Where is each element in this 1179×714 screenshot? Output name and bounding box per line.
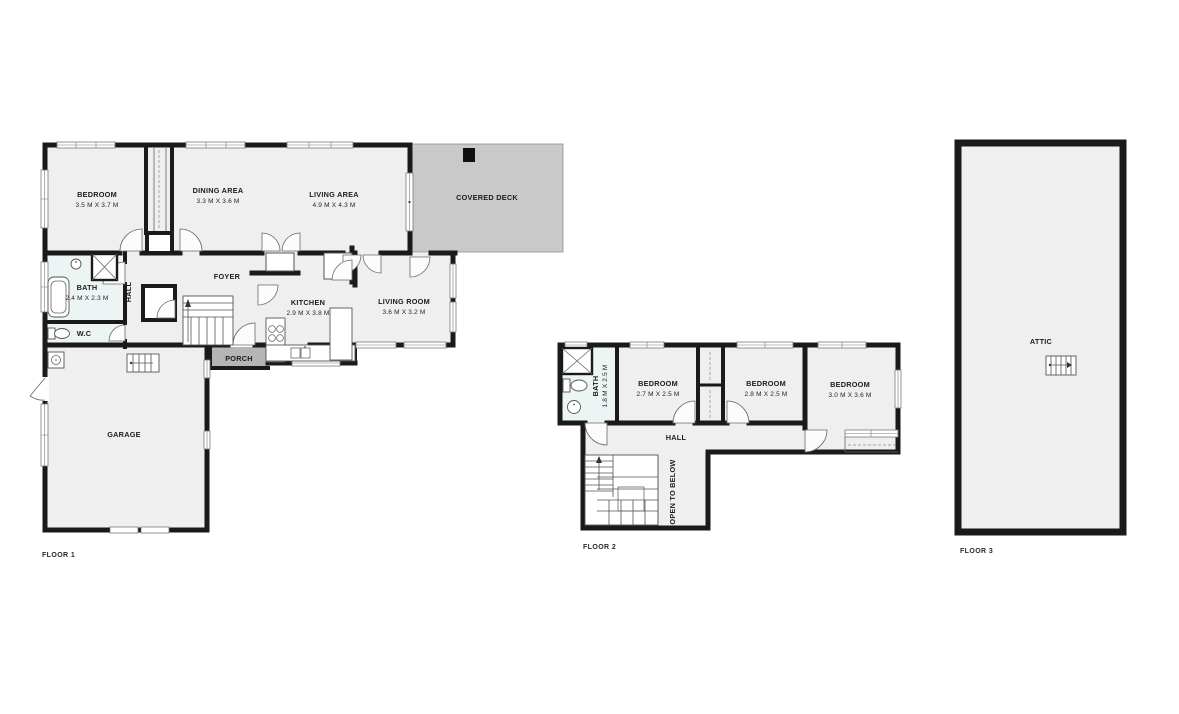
shower-icon [92, 254, 117, 280]
side-door-gap [41, 377, 49, 401]
svg-text:BATH: BATH [591, 376, 600, 397]
room-label-open-to-below: OPEN TO BELOW [668, 459, 677, 524]
room-label-covered-deck: COVERED DECK [456, 193, 518, 202]
svg-text:BEDROOM: BEDROOM [77, 190, 117, 199]
floor2-toilet-icon [563, 379, 587, 392]
window [41, 404, 48, 466]
svg-text:1.8 M X 2.5 M: 1.8 M X 2.5 M [602, 364, 609, 407]
window [287, 142, 353, 148]
room-label-porch: PORCH [225, 354, 253, 363]
svg-text:2.9 M X 3.8 M: 2.9 M X 3.8 M [286, 310, 329, 317]
svg-text:3.6 M X 3.2 M: 3.6 M X 3.2 M [382, 309, 425, 316]
window [450, 264, 456, 298]
floorplan-svg: BEDROOM 3.5 M X 3.7 M DINING AREA 3.3 M … [0, 0, 1179, 714]
deck-post-icon [463, 148, 475, 162]
floor2-sink-icon [568, 401, 581, 414]
floor1-plan: BEDROOM 3.5 M X 3.7 M DINING AREA 3.3 M … [30, 142, 563, 559]
svg-text:KITCHEN: KITCHEN [291, 298, 325, 307]
floor3-label: FLOOR 3 [960, 548, 993, 555]
window [204, 360, 210, 378]
svg-text:4.9 M X 4.3 M: 4.9 M X 4.3 M [312, 202, 355, 209]
svg-text:LIVING ROOM: LIVING ROOM [378, 297, 430, 306]
sliding-door [406, 173, 413, 231]
window [41, 170, 48, 228]
toilet-icon [48, 328, 70, 339]
window [204, 431, 210, 449]
floorplan-canvas: BEDROOM 3.5 M X 3.7 M DINING AREA 3.3 M … [0, 0, 1179, 714]
foyer-stairs-icon [183, 296, 233, 345]
window [450, 302, 456, 332]
foyer-niche [266, 253, 294, 271]
water-heater-icon [48, 352, 64, 368]
floor2-plan: BATH 1.8 M X 2.5 M BEDROOM 2.7 M X 2.5 M… [560, 342, 901, 551]
room-label-hall: HALL [124, 281, 133, 302]
bath-sink-icon [71, 259, 81, 269]
room-label-attic: ATTIC [1030, 337, 1053, 346]
window [57, 142, 115, 148]
window [737, 342, 793, 348]
chimney-box [147, 233, 172, 253]
svg-text:BEDROOM: BEDROOM [830, 380, 870, 389]
svg-text:BATH: BATH [77, 283, 98, 292]
svg-text:DINING AREA: DINING AREA [193, 186, 244, 195]
svg-text:BEDROOM: BEDROOM [746, 379, 786, 388]
floor2-shower-icon [562, 348, 592, 374]
svg-text:3.0 M X 3.6 M: 3.0 M X 3.6 M [828, 392, 871, 399]
window [895, 370, 901, 408]
window [41, 262, 48, 312]
svg-text:BEDROOM: BEDROOM [638, 379, 678, 388]
window [630, 342, 664, 348]
window [818, 342, 866, 348]
room-label-garage: GARAGE [107, 430, 141, 439]
window [356, 342, 396, 348]
floor3-plan: ATTIC FLOOR 3 [958, 143, 1123, 555]
attic-stairs-icon [1046, 356, 1076, 375]
floor2-label: FLOOR 2 [583, 544, 616, 551]
room-label-foyer: FOYER [214, 272, 241, 281]
floor1-label: FLOOR 1 [42, 552, 75, 559]
svg-text:3.3 M X 3.6 M: 3.3 M X 3.6 M [196, 198, 239, 205]
room-label-floor2-hall: HALL [666, 433, 687, 442]
floor2-stairs-icon [585, 455, 658, 525]
garage-stairs-icon [127, 354, 159, 372]
room-label-wc: W.C [77, 329, 92, 338]
svg-text:LIVING AREA: LIVING AREA [309, 190, 359, 199]
svg-text:2.8 M X 2.5 M: 2.8 M X 2.5 M [744, 391, 787, 398]
svg-text:2.7 M X 2.5 M: 2.7 M X 2.5 M [636, 391, 679, 398]
svg-text:3.5 M X 3.7 M: 3.5 M X 3.7 M [75, 202, 118, 209]
window [186, 142, 245, 148]
window [404, 342, 446, 348]
svg-text:2.4 M X 2.3 M: 2.4 M X 2.3 M [65, 295, 108, 302]
